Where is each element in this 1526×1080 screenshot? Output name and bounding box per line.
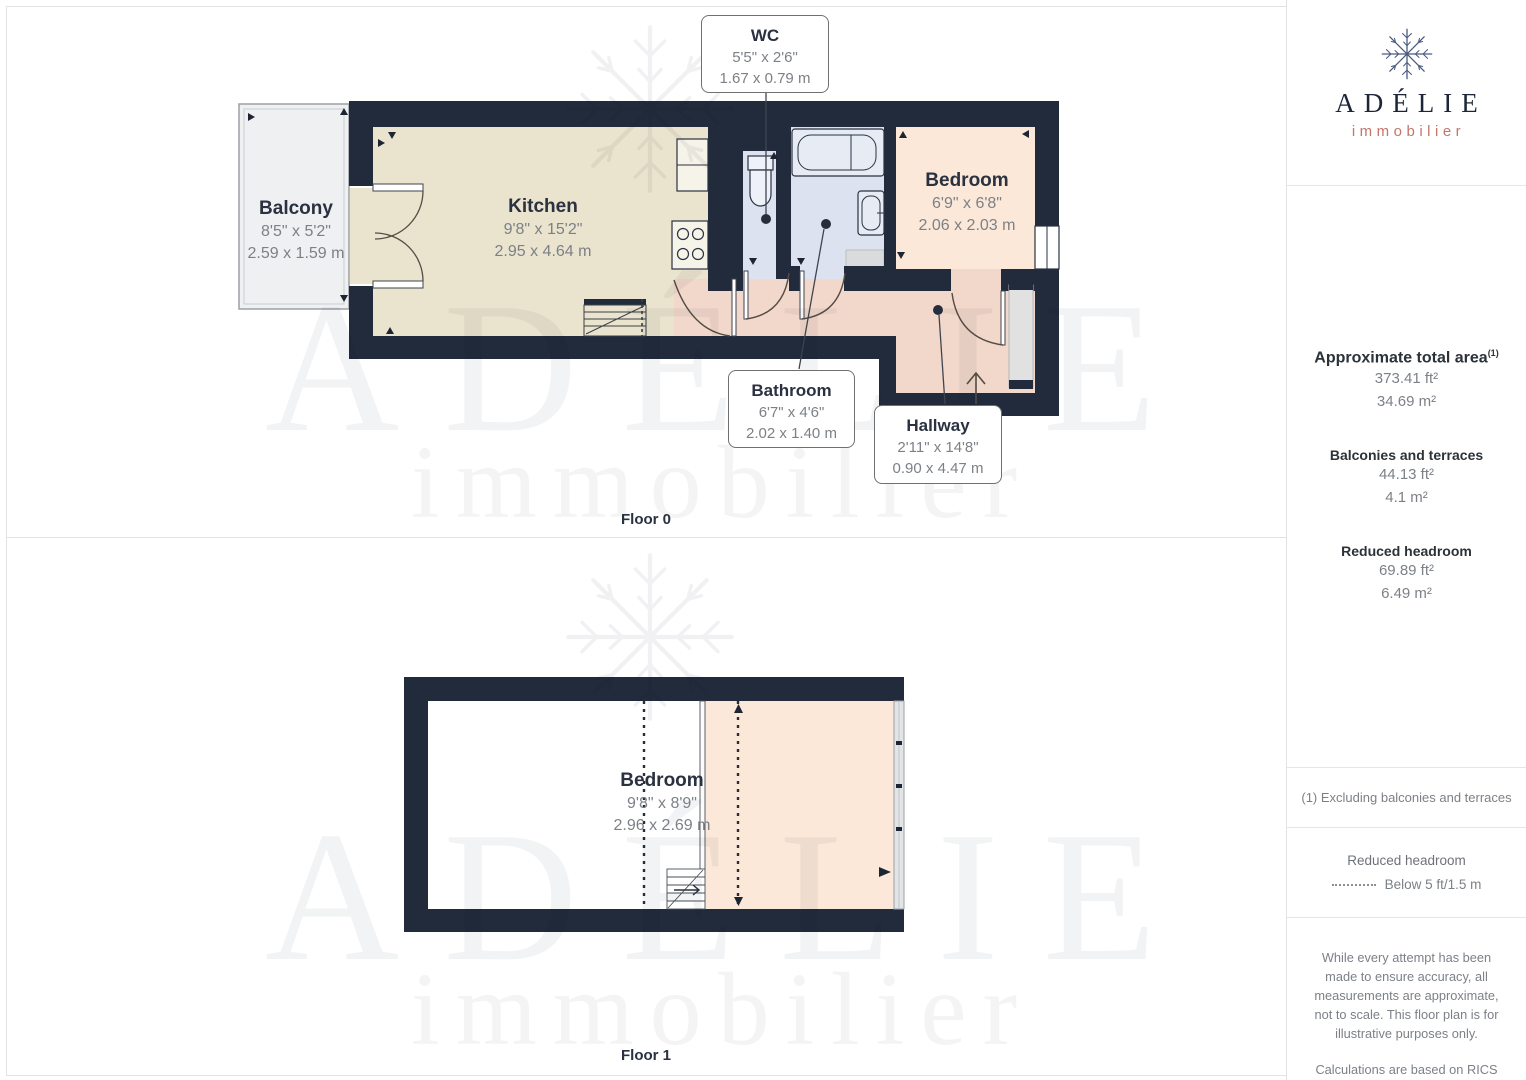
front-door	[1009, 283, 1033, 389]
room-name: Bathroom	[729, 380, 854, 402]
balconies-ft: 44.13 ft²	[1287, 463, 1526, 486]
kitchen-area	[373, 127, 708, 336]
footnote-section: (1) Excluding balconies and terraces	[1287, 768, 1526, 828]
room-dim-imperial: 2'11" x 14'8"	[875, 437, 1001, 458]
balconies-area-group: Balconies and terraces 44.13 ft² 4.1 m²	[1287, 447, 1526, 509]
hallway-callout: Hallway 2'11" x 14'8" 0.90 x 4.47 m	[874, 405, 1002, 484]
floor0-panel: ADÉLIE immobilier Balcony 8'5" x 5'2" 2.…	[6, 6, 1287, 539]
stove-icon	[672, 221, 708, 269]
room-name: Hallway	[875, 415, 1001, 437]
brand-logo: ADÉLIE immobilier	[1287, 28, 1526, 186]
balcony-area	[239, 104, 349, 309]
area-summary: Approximate total area(1) 373.41 ft² 34.…	[1287, 186, 1526, 768]
floorplan-page: ADÉLIE immobilier Balcony 8'5" x 5'2" 2.…	[0, 0, 1526, 1080]
legend-item: Below 5 ft/1.5 m	[1332, 877, 1482, 892]
balconies-title: Balconies and terraces	[1287, 447, 1526, 463]
total-area-ft: 373.41 ft²	[1287, 367, 1526, 390]
floor0-label: Floor 0	[621, 511, 671, 528]
room-name: WC	[702, 25, 828, 47]
sink-icon	[858, 191, 884, 235]
bedroom1-area	[704, 701, 894, 909]
info-sidebar: ADÉLIE immobilier Approximate total area…	[1286, 0, 1526, 1080]
reduced-headroom-group: Reduced headroom 69.89 ft² 6.49 m²	[1287, 543, 1526, 605]
floor1-plan-svg	[7, 538, 1286, 1075]
total-area-group: Approximate total area(1) 373.41 ft² 34.…	[1287, 348, 1526, 413]
disclaimer-accuracy: While every attempt has been made to ens…	[1307, 948, 1506, 1043]
room-dim-metric: 1.67 x 0.79 m	[702, 68, 828, 89]
total-area-m: 34.69 m²	[1287, 390, 1526, 413]
snowflake-logo-icon	[1381, 28, 1433, 80]
legend-section: Reduced headroom Below 5 ft/1.5 m	[1287, 828, 1526, 918]
bedroom1-reduced-area	[428, 701, 704, 909]
stairs-floor0	[584, 299, 646, 336]
fridge-icon	[677, 139, 708, 191]
legend-item-text: Below 5 ft/1.5 m	[1385, 877, 1482, 892]
room-dim-metric: 0.90 x 4.47 m	[875, 458, 1001, 479]
brand-tagline: immobilier	[1287, 123, 1526, 140]
wc-callout: WC 5'5" x 2'6" 1.67 x 0.79 m	[701, 15, 829, 93]
bathtub-icon	[792, 129, 884, 176]
floor0-plan-svg	[7, 7, 1286, 538]
floor1-label: Floor 1	[621, 1047, 671, 1064]
bedroom-window	[1035, 226, 1059, 269]
room-dim-metric: 2.02 x 1.40 m	[729, 423, 854, 444]
footnote-text: (1) Excluding balconies and terraces	[1301, 790, 1511, 805]
brand-name: ADÉLIE	[1287, 88, 1526, 119]
footnote-marker: (1)	[1488, 348, 1499, 358]
bathroom-callout: Bathroom 6'7" x 4'6" 2.02 x 1.40 m	[728, 370, 855, 448]
dotted-line-icon	[1332, 884, 1376, 886]
total-area-title-text: Approximate total area	[1314, 349, 1487, 366]
floor1-panel: ADÉLIE immobilier Bedroom 9'8" x 8'9" 2.…	[6, 537, 1287, 1076]
toilet-icon	[748, 156, 773, 206]
total-area-title: Approximate total area(1)	[1287, 348, 1526, 367]
room-dim-imperial: 5'5" x 2'6"	[702, 47, 828, 68]
reduced-title: Reduced headroom	[1287, 543, 1526, 559]
bedroom-area	[896, 127, 1035, 269]
reduced-ft: 69.89 ft²	[1287, 559, 1526, 582]
room-dim-imperial: 6'7" x 4'6"	[729, 402, 854, 423]
balconies-m: 4.1 m²	[1287, 486, 1526, 509]
legend-title: Reduced headroom	[1347, 853, 1466, 868]
reduced-m: 6.49 m²	[1287, 582, 1526, 605]
disclaimer-standard: Calculations are based on RICS IPMS 3C s…	[1307, 1060, 1506, 1080]
disclaimer-section: While every attempt has been made to ens…	[1287, 918, 1526, 1080]
